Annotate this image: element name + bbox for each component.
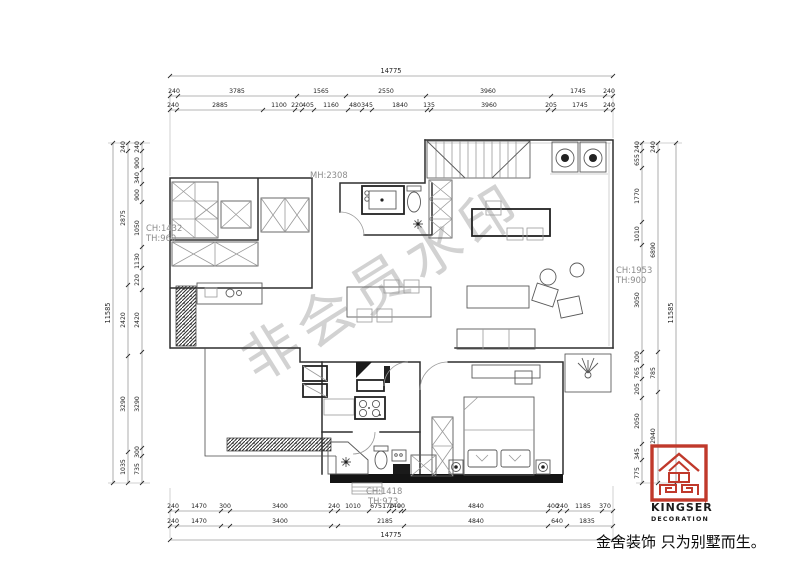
bedroom	[411, 362, 550, 476]
dim-label: 11585	[104, 303, 112, 324]
dresser	[472, 365, 540, 378]
slogan-text: 金舍装饰 只为别墅而生。	[596, 533, 766, 551]
dim-label: 480	[349, 102, 361, 109]
annotation-mh: MH:2308	[310, 170, 348, 180]
dim-label: 2050	[634, 413, 641, 429]
dim-label: 205	[634, 383, 641, 395]
toilet-icon-2	[374, 446, 388, 469]
logo-seal-icon	[652, 446, 706, 500]
dimensions-top: 14775 240 3785 1565 2550 3960 1745 240 2…	[167, 67, 615, 112]
shower-stall	[328, 442, 368, 474]
nightstand-lamp-right	[536, 460, 550, 474]
dim-label: 3290	[120, 396, 127, 412]
door-arc-bedroom	[420, 362, 448, 390]
dim-label: 4840	[468, 503, 484, 510]
dim-label: 240	[603, 102, 615, 109]
shower-icon-2	[341, 457, 351, 467]
dim-label: 405	[302, 102, 314, 109]
dim-label: 655	[634, 154, 641, 166]
dim-label: 785	[650, 367, 657, 379]
dim-label: 2420	[134, 312, 141, 328]
dim-label: 240	[168, 88, 180, 95]
sink-icon-2	[392, 450, 406, 461]
dim-label: 370	[599, 503, 611, 510]
dim-label: 340	[134, 172, 141, 184]
annotation-ch-left: CH:1432	[146, 223, 182, 233]
dim-label: 1840	[392, 102, 408, 109]
door-arc-bath	[353, 432, 375, 454]
dim-label: 900	[134, 157, 141, 169]
dim-label: 1100	[271, 102, 287, 109]
annotation-th-left: TH:960	[145, 233, 176, 243]
dimensions-right: 240 655 1770 1010 3050 200 765 205 2050 …	[634, 141, 678, 485]
dim-label: 1470	[191, 518, 207, 525]
dim-label: 240	[167, 102, 179, 109]
dim-label: 300	[219, 503, 231, 510]
washer-icons	[550, 142, 608, 174]
annotation-th-bottom: TH:973	[367, 496, 398, 506]
dim-label: 3400	[272, 518, 288, 525]
annotation-ch-bottom: CH:1418	[366, 486, 402, 496]
dim-label: 3290	[134, 396, 141, 412]
plant-icon-bay	[578, 358, 598, 378]
corner-shelf	[356, 362, 372, 378]
dim-label: 1745	[572, 102, 588, 109]
dim-label: 240	[120, 141, 127, 153]
logo-brand-mark: '	[704, 499, 707, 510]
dim-label: 240	[134, 141, 141, 153]
door-arc	[340, 212, 364, 236]
floor-plan-page: 非会员水印	[0, 0, 800, 566]
dim-label: 2885	[212, 102, 228, 109]
kitchen-counter-left	[197, 283, 262, 304]
dim-label: 240	[328, 503, 340, 510]
floor-plan-drawing: 非会员水印	[0, 0, 800, 566]
bed	[464, 397, 534, 475]
dim-label: 240	[650, 141, 657, 153]
dim-label: 1035	[120, 459, 127, 475]
nightstand-lamp-left	[449, 460, 463, 474]
dim-label: 900	[134, 189, 141, 201]
sink-icon	[362, 186, 404, 214]
dim-label: 14775	[381, 531, 402, 539]
dim-label: 240	[603, 88, 615, 95]
toilet-icon	[407, 186, 421, 212]
dim-label: 1160	[323, 102, 339, 109]
dim-label: 640	[551, 518, 563, 525]
dim-label: 11585	[667, 303, 675, 324]
staircase	[427, 141, 530, 178]
dim-label: 1745	[570, 88, 586, 95]
bathroom-bottom	[328, 432, 410, 494]
dim-label: 3960	[481, 102, 497, 109]
sofa-set	[457, 263, 584, 349]
dim-label: 345	[634, 448, 641, 460]
dim-label: 1010	[634, 226, 641, 242]
plant-box-balcony	[227, 438, 331, 451]
shelf-icon	[365, 191, 369, 201]
dim-label: 1470	[191, 503, 207, 510]
dimensions-left: 11585 240 2875 2420 3290 1035 240 900 34…	[104, 141, 144, 485]
dim-label: 2550	[378, 88, 394, 95]
dim-label: 1835	[579, 518, 595, 525]
dim-label: 2185	[377, 518, 393, 525]
dimensions-bottom: 240 1470 300 3400 240 1010 675 170 240 9…	[167, 503, 615, 542]
dim-label: 775	[634, 467, 641, 479]
bedroom-wardrobe	[411, 417, 453, 476]
dim-label: 205	[545, 102, 557, 109]
dim-label: 1050	[134, 220, 141, 236]
dim-label: 300	[134, 446, 141, 458]
dim-label: 4840	[468, 518, 484, 525]
annotation-th-right: TH:900	[615, 275, 646, 285]
kitchen-bottom	[303, 362, 408, 419]
dim-label: 1565	[313, 88, 329, 95]
dim-label: 3960	[480, 88, 496, 95]
dim-label: 90	[397, 503, 405, 510]
dim-label: 345	[361, 102, 373, 109]
wardrobe-top-left	[172, 182, 309, 266]
dim-label: 1770	[634, 188, 641, 204]
annotation-ch-right: CH:1953	[616, 265, 652, 275]
dim-label: 200	[634, 351, 641, 363]
dim-label: 240	[634, 141, 641, 153]
dim-label: 3050	[634, 292, 641, 308]
kingser-logo: KINGSER ' DECORATION	[651, 446, 713, 523]
dim-label: 2875	[120, 210, 127, 226]
dim-label: 2420	[120, 312, 127, 328]
stove-icon	[355, 397, 385, 419]
dim-label: 14775	[381, 67, 402, 75]
dim-label: 3785	[229, 88, 245, 95]
dim-label: 135	[423, 102, 435, 109]
dim-label: 765	[634, 367, 641, 379]
dim-label: 3400	[272, 503, 288, 510]
shower-icon	[413, 219, 423, 229]
dim-label: 220	[134, 274, 141, 286]
dim-label: 2940	[650, 428, 657, 444]
dim-label: 735	[134, 463, 141, 475]
vanity-block	[393, 464, 410, 474]
plant-box-left	[176, 286, 196, 346]
logo-sub-text: DECORATION	[651, 516, 709, 523]
dim-label: 6890	[650, 242, 657, 258]
dim-label: 240	[167, 503, 179, 510]
dim-label: 1185	[575, 503, 591, 510]
dim-label: 1130	[134, 253, 141, 269]
dim-label: 240	[167, 518, 179, 525]
dim-label: 240	[556, 503, 568, 510]
dim-label: 1010	[345, 503, 361, 510]
